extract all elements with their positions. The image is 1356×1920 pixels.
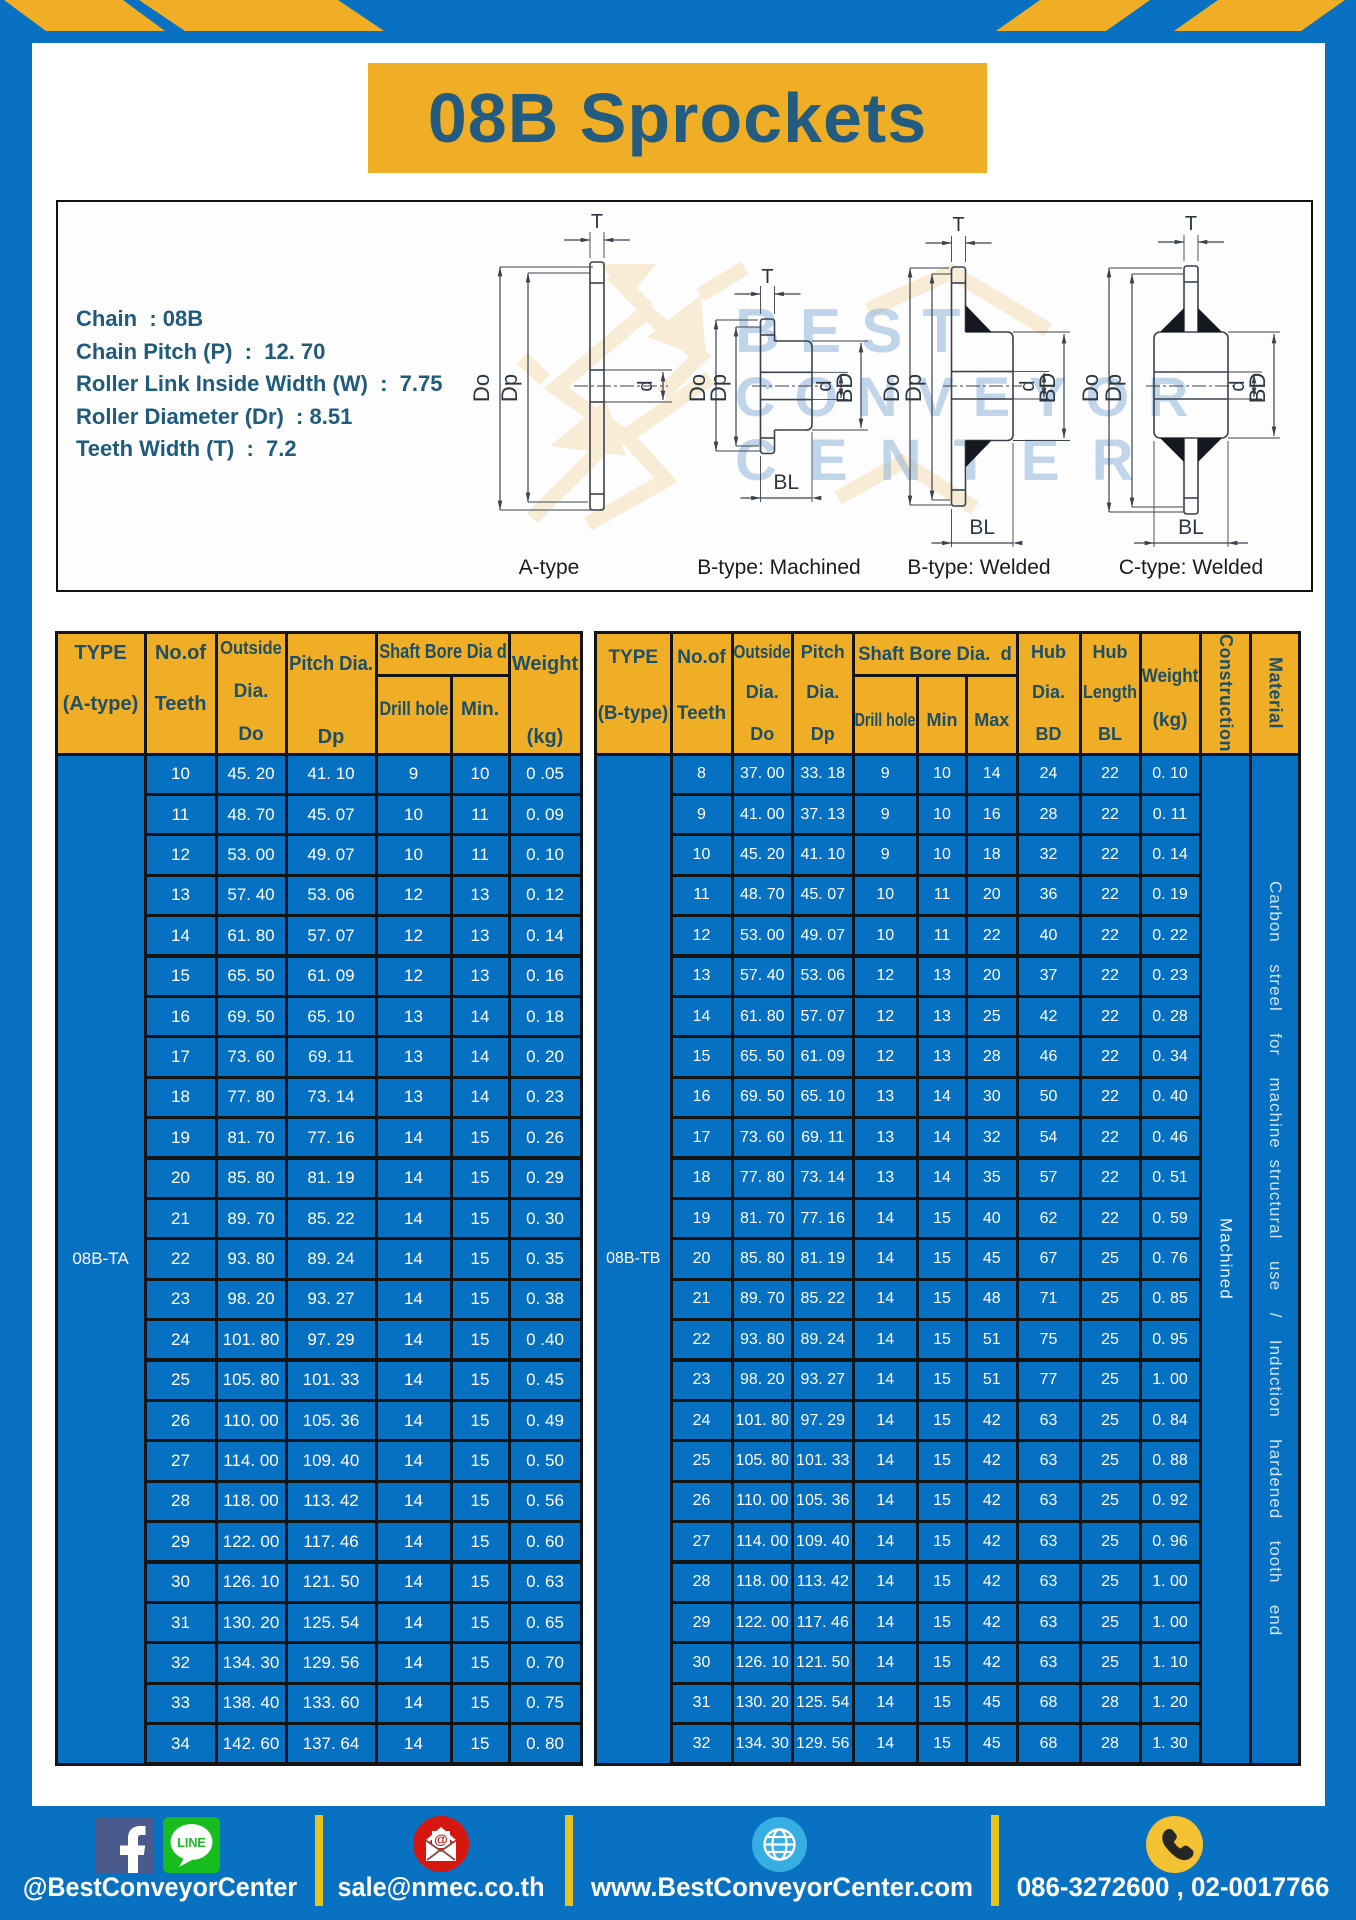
svg-text:BL: BL (1178, 516, 1204, 539)
svg-text:BD: BD (1245, 373, 1270, 404)
svg-text:T: T (1185, 213, 1197, 235)
svg-text:Dp: Dp (901, 374, 926, 402)
svg-text:LINE: LINE (177, 1836, 205, 1850)
svg-text:BL: BL (969, 516, 995, 539)
svg-text:BD: BD (1035, 373, 1060, 404)
svg-text:T: T (761, 266, 773, 288)
svg-text:BD: BD (832, 373, 857, 404)
svg-text:Do: Do (1078, 374, 1103, 402)
svg-text:d: d (635, 380, 657, 391)
svg-text:Dp: Dp (1101, 374, 1126, 402)
svg-text:T: T (591, 211, 603, 233)
svg-text:BL: BL (773, 471, 799, 494)
svg-text:Do: Do (469, 374, 494, 402)
svg-text:@: @ (434, 1831, 448, 1847)
svg-text:Dp: Dp (497, 374, 522, 402)
svg-text:T: T (952, 214, 964, 236)
svg-text:Dp: Dp (706, 374, 731, 402)
